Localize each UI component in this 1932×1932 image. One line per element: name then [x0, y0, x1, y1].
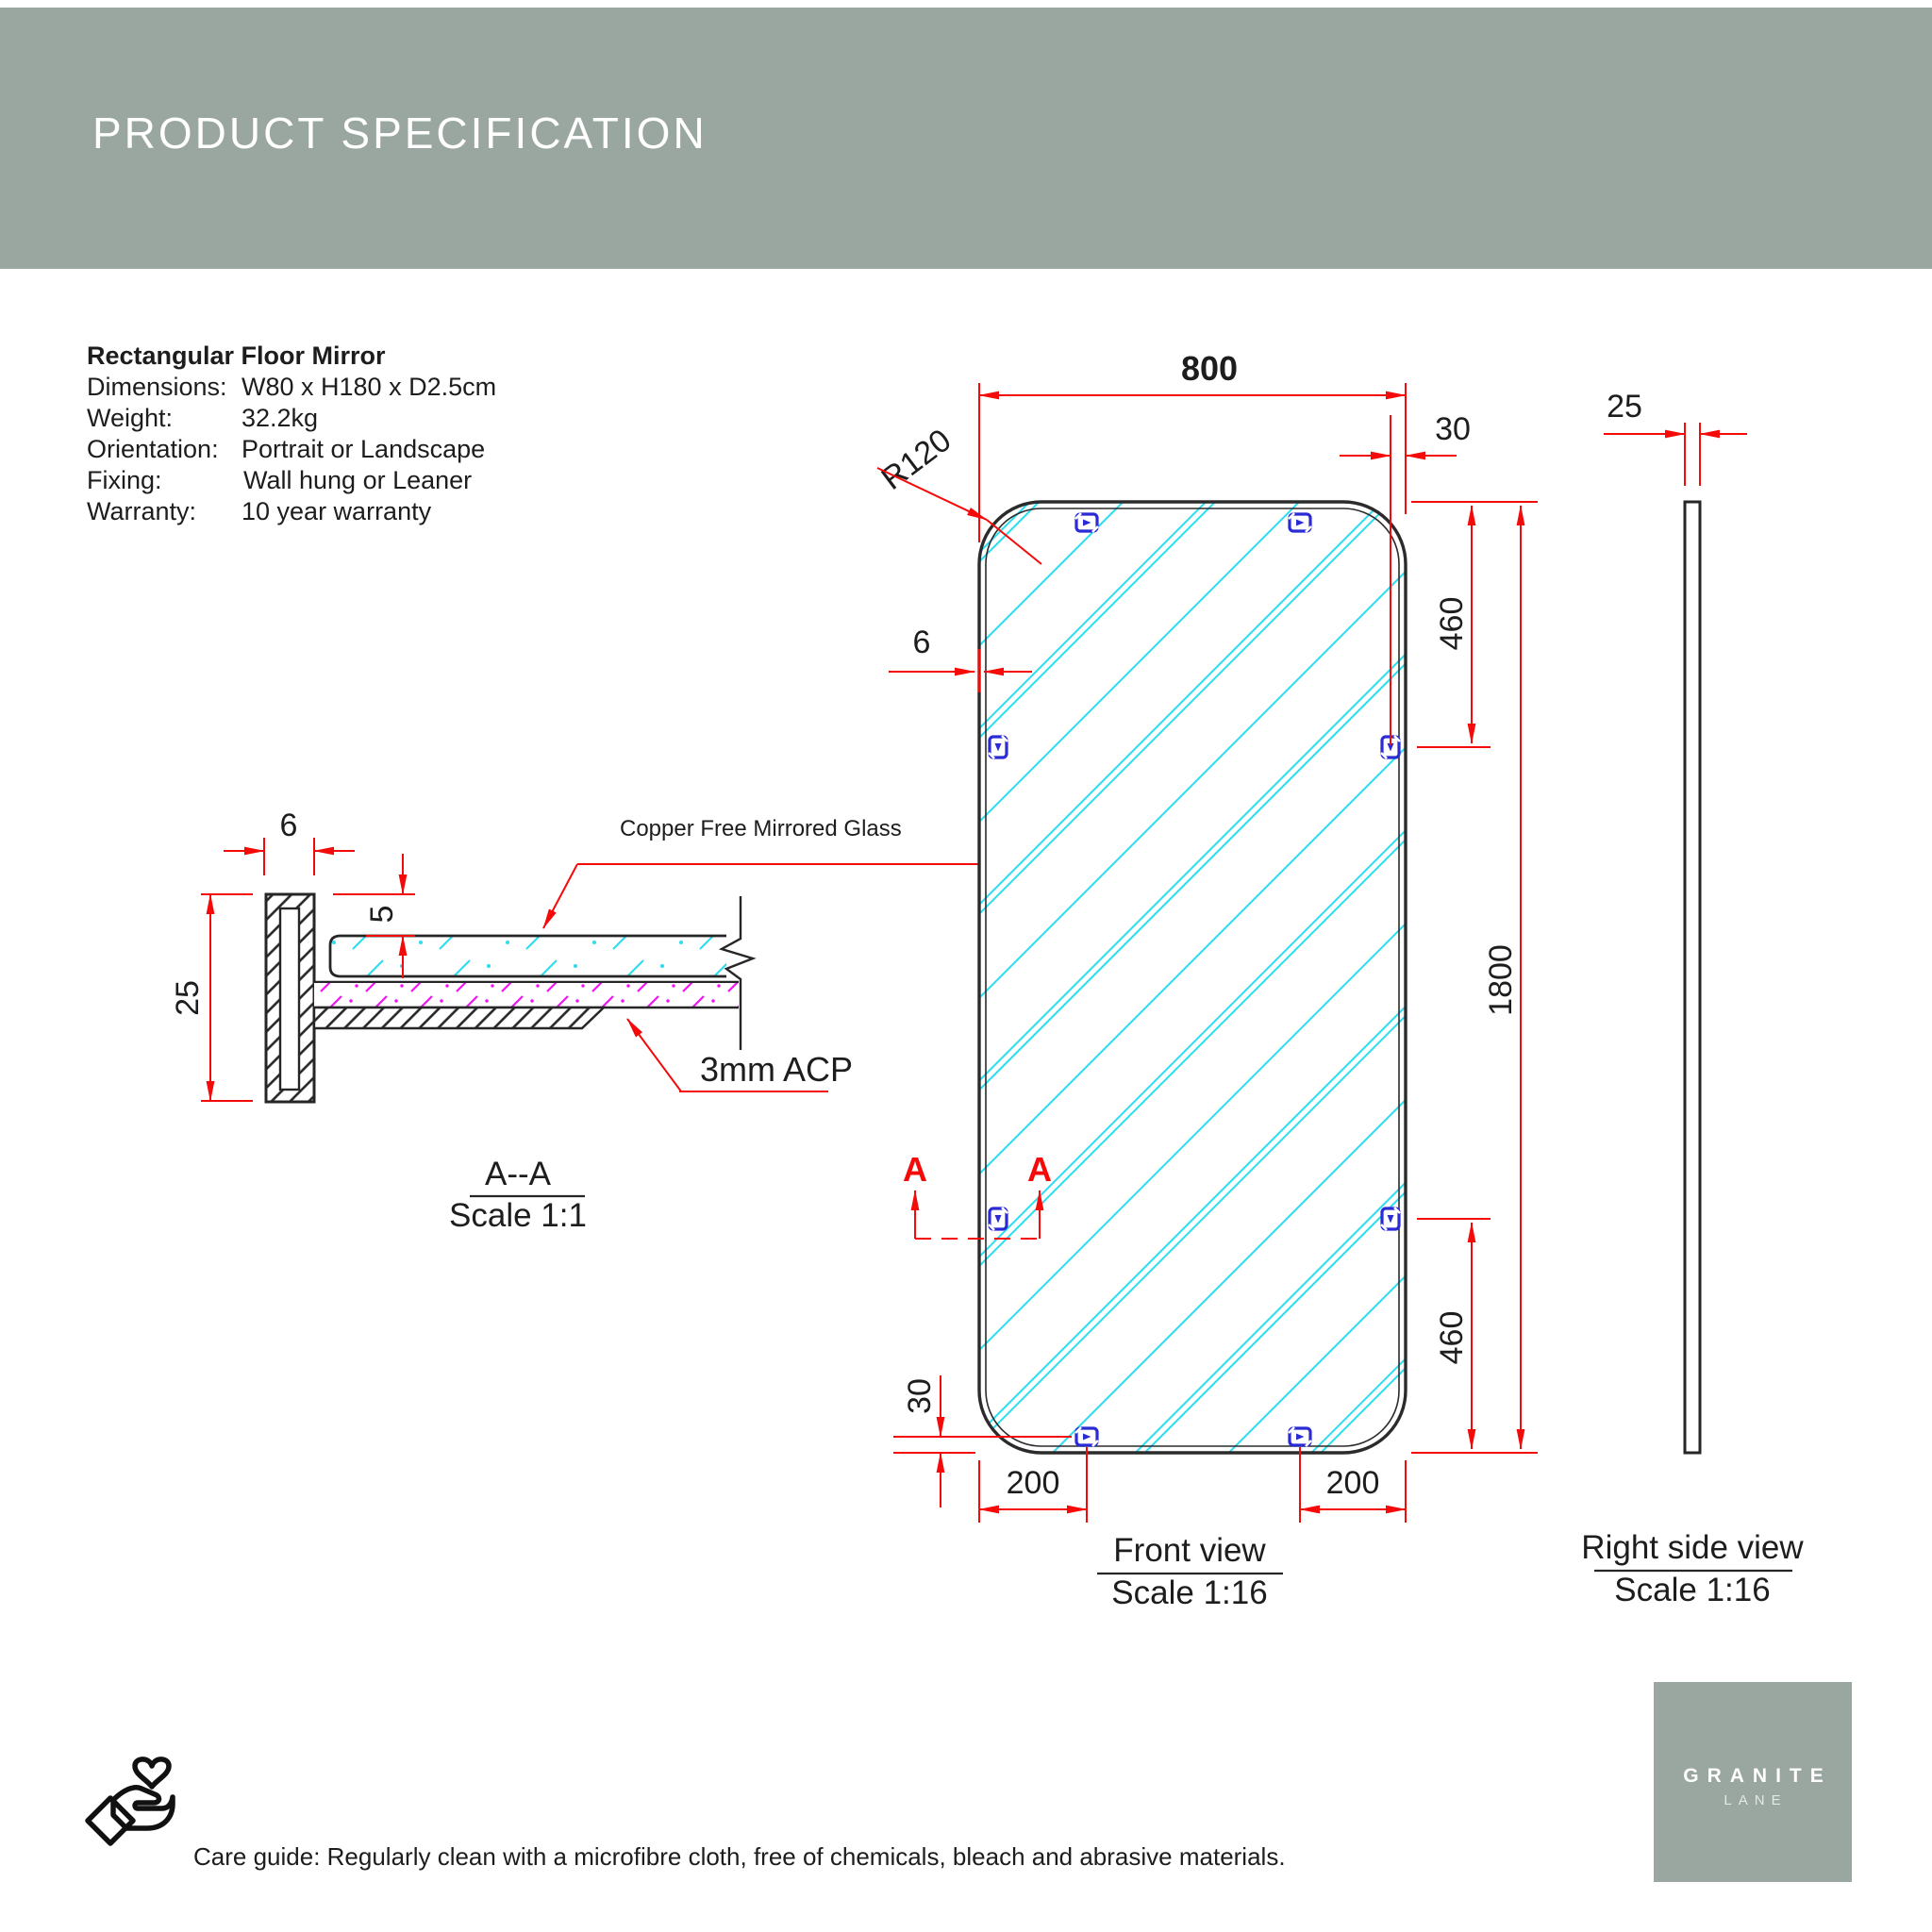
- dim-frame-face-label: 6: [913, 625, 931, 660]
- glass-label: Copper Free Mirrored Glass: [620, 816, 902, 841]
- clip-icon: [1289, 513, 1311, 532]
- dim-clip-left: 200: [979, 1447, 1087, 1523]
- section-view-scale: Scale 1:1: [449, 1197, 587, 1234]
- dim-glass-inset-label: 5: [364, 906, 400, 924]
- spec-value-fixing: Wall hung or Leaner: [243, 466, 472, 494]
- section-view: 6 25 5 Copper Free Mirrored Glass 3mm AC…: [170, 808, 1090, 1234]
- dim-height: 1800: [1411, 506, 1538, 1453]
- product-spec-block: Rectangular Floor Mirror Dimensions: W80…: [87, 341, 496, 525]
- brand-subname: LANE: [1724, 1792, 1787, 1808]
- front-view-title: Front view: [1113, 1532, 1266, 1569]
- care-guide: Care guide: Regularly clean with a micro…: [88, 1759, 1286, 1871]
- dim-clip-edge-top-label: 30: [1435, 411, 1471, 447]
- side-view-scale: Scale 1:16: [1614, 1572, 1770, 1608]
- dim-height-label: 1800: [1483, 944, 1519, 1016]
- front-view: R120 800 30 460 460: [874, 349, 1538, 1611]
- dim-corner-radius: R120: [874, 423, 1041, 564]
- dim-frame-width: 6: [224, 808, 355, 875]
- glass-layer: [330, 936, 726, 976]
- spec-label-fixing: Fixing:: [87, 466, 162, 494]
- spec-sheet-page: PRODUCT SPECIFICATION Rectangular Floor …: [0, 0, 1932, 1932]
- acp-layer: [314, 983, 739, 1008]
- dim-clip-left-label: 200: [1007, 1465, 1060, 1501]
- clip-icon: [1075, 1427, 1098, 1446]
- product-name: Rectangular Floor Mirror: [87, 341, 386, 370]
- page-title: PRODUCT SPECIFICATION: [92, 108, 708, 158]
- right-side-view: 25 Right side view Scale 1:16: [1581, 389, 1804, 1608]
- clip-icon: [1289, 1427, 1311, 1446]
- clip-icon: [1075, 513, 1098, 532]
- spec-value-weight: 32.2kg: [241, 404, 318, 432]
- acp-label: 3mm ACP: [700, 1050, 853, 1089]
- dim-clip-right-label: 200: [1326, 1465, 1380, 1501]
- care-hand-heart-icon: [88, 1759, 173, 1843]
- clip-icon: [989, 736, 1008, 758]
- dim-depth: 25: [1604, 389, 1747, 486]
- dim-width-label: 800: [1181, 349, 1238, 388]
- spec-label-orientation: Orientation:: [87, 435, 219, 463]
- dim-clip-bottom: 460: [1417, 1219, 1491, 1449]
- section-marker-right: A: [1027, 1150, 1052, 1189]
- dim-clip-edge-bottom-label: 30: [902, 1378, 938, 1414]
- spec-label-dimensions: Dimensions:: [87, 373, 227, 401]
- spec-value-warranty: 10 year warranty: [241, 497, 432, 525]
- section-view-title: A--A: [485, 1156, 552, 1192]
- brand-name: GRANITE: [1683, 1765, 1832, 1787]
- frame-back-leg: [314, 1008, 604, 1028]
- front-view-scale: Scale 1:16: [1111, 1574, 1267, 1611]
- spec-value-orientation: Portrait or Landscape: [241, 435, 485, 463]
- header-banner: PRODUCT SPECIFICATION: [0, 8, 1932, 269]
- mirror-outline: [979, 502, 1406, 1453]
- clip-icon: [989, 1207, 1008, 1230]
- clip-icon: [1381, 1207, 1400, 1230]
- dim-frame-depth-label: 25: [170, 980, 206, 1016]
- side-view-title: Right side view: [1581, 1529, 1804, 1566]
- dim-depth-label: 25: [1607, 389, 1642, 425]
- care-guide-text: Care guide: Regularly clean with a micro…: [193, 1842, 1286, 1871]
- spec-value-dimensions: W80 x H180 x D2.5cm: [241, 373, 496, 401]
- frame-slot: [280, 908, 299, 1090]
- dim-frame-width-label: 6: [280, 808, 298, 843]
- dim-clip-top-label: 460: [1434, 597, 1470, 651]
- dim-clip-top: 460: [1411, 502, 1538, 747]
- section-marker-left: A: [903, 1150, 927, 1189]
- side-profile: [1685, 502, 1700, 1453]
- spec-label-weight: Weight:: [87, 404, 173, 432]
- dim-clip-bottom-label: 460: [1434, 1311, 1470, 1365]
- brand-logo: GRANITE LANE: [1654, 1682, 1852, 1882]
- dim-clip-right: 200: [1300, 1447, 1406, 1523]
- drawing-canvas: PRODUCT SPECIFICATION Rectangular Floor …: [0, 0, 1932, 1932]
- dim-frame-depth: 25: [170, 894, 253, 1101]
- spec-label-warranty: Warranty:: [87, 497, 196, 525]
